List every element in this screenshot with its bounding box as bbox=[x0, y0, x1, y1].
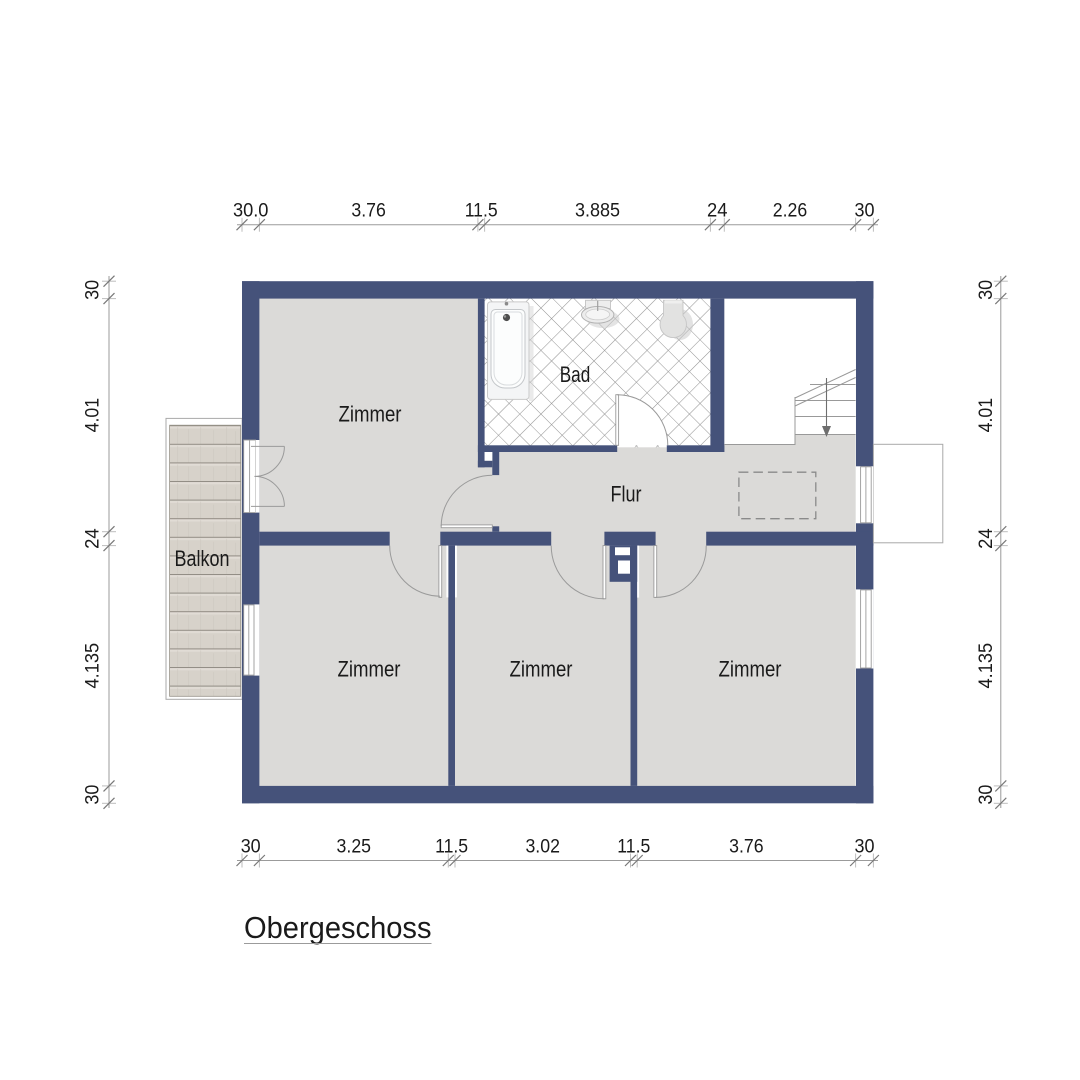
svg-text:Zimmer: Zimmer bbox=[510, 657, 573, 682]
svg-text:Zimmer: Zimmer bbox=[719, 657, 782, 682]
svg-text:30: 30 bbox=[241, 836, 261, 857]
svg-text:30: 30 bbox=[976, 280, 997, 300]
svg-text:3.02: 3.02 bbox=[525, 836, 560, 857]
svg-text:4.135: 4.135 bbox=[83, 643, 104, 689]
svg-text:24: 24 bbox=[976, 528, 997, 549]
svg-text:30: 30 bbox=[83, 785, 104, 805]
svg-text:Obergeschoss: Obergeschoss bbox=[244, 910, 432, 945]
svg-text:Bad: Bad bbox=[560, 362, 591, 387]
svg-text:3.25: 3.25 bbox=[337, 836, 372, 857]
svg-text:Balkon: Balkon bbox=[175, 546, 230, 571]
svg-text:30: 30 bbox=[855, 201, 875, 222]
svg-text:24: 24 bbox=[707, 201, 728, 222]
svg-text:11.5: 11.5 bbox=[465, 201, 498, 222]
svg-text:Zimmer: Zimmer bbox=[339, 401, 402, 426]
svg-text:30: 30 bbox=[83, 280, 104, 300]
svg-text:3.885: 3.885 bbox=[575, 201, 620, 222]
svg-text:Zimmer: Zimmer bbox=[338, 657, 401, 682]
svg-text:30: 30 bbox=[855, 836, 875, 857]
svg-text:11.5: 11.5 bbox=[435, 836, 468, 857]
svg-text:3.76: 3.76 bbox=[729, 836, 764, 857]
svg-text:Flur: Flur bbox=[611, 481, 642, 506]
svg-text:30: 30 bbox=[976, 785, 997, 805]
svg-text:2.26: 2.26 bbox=[773, 201, 808, 222]
svg-text:30.0: 30.0 bbox=[233, 201, 269, 222]
svg-text:11.5: 11.5 bbox=[617, 836, 650, 857]
svg-text:4.135: 4.135 bbox=[976, 643, 997, 689]
svg-text:24: 24 bbox=[83, 528, 104, 549]
svg-text:4.01: 4.01 bbox=[976, 398, 997, 433]
svg-text:4.01: 4.01 bbox=[83, 398, 104, 433]
svg-text:3.76: 3.76 bbox=[351, 201, 386, 222]
